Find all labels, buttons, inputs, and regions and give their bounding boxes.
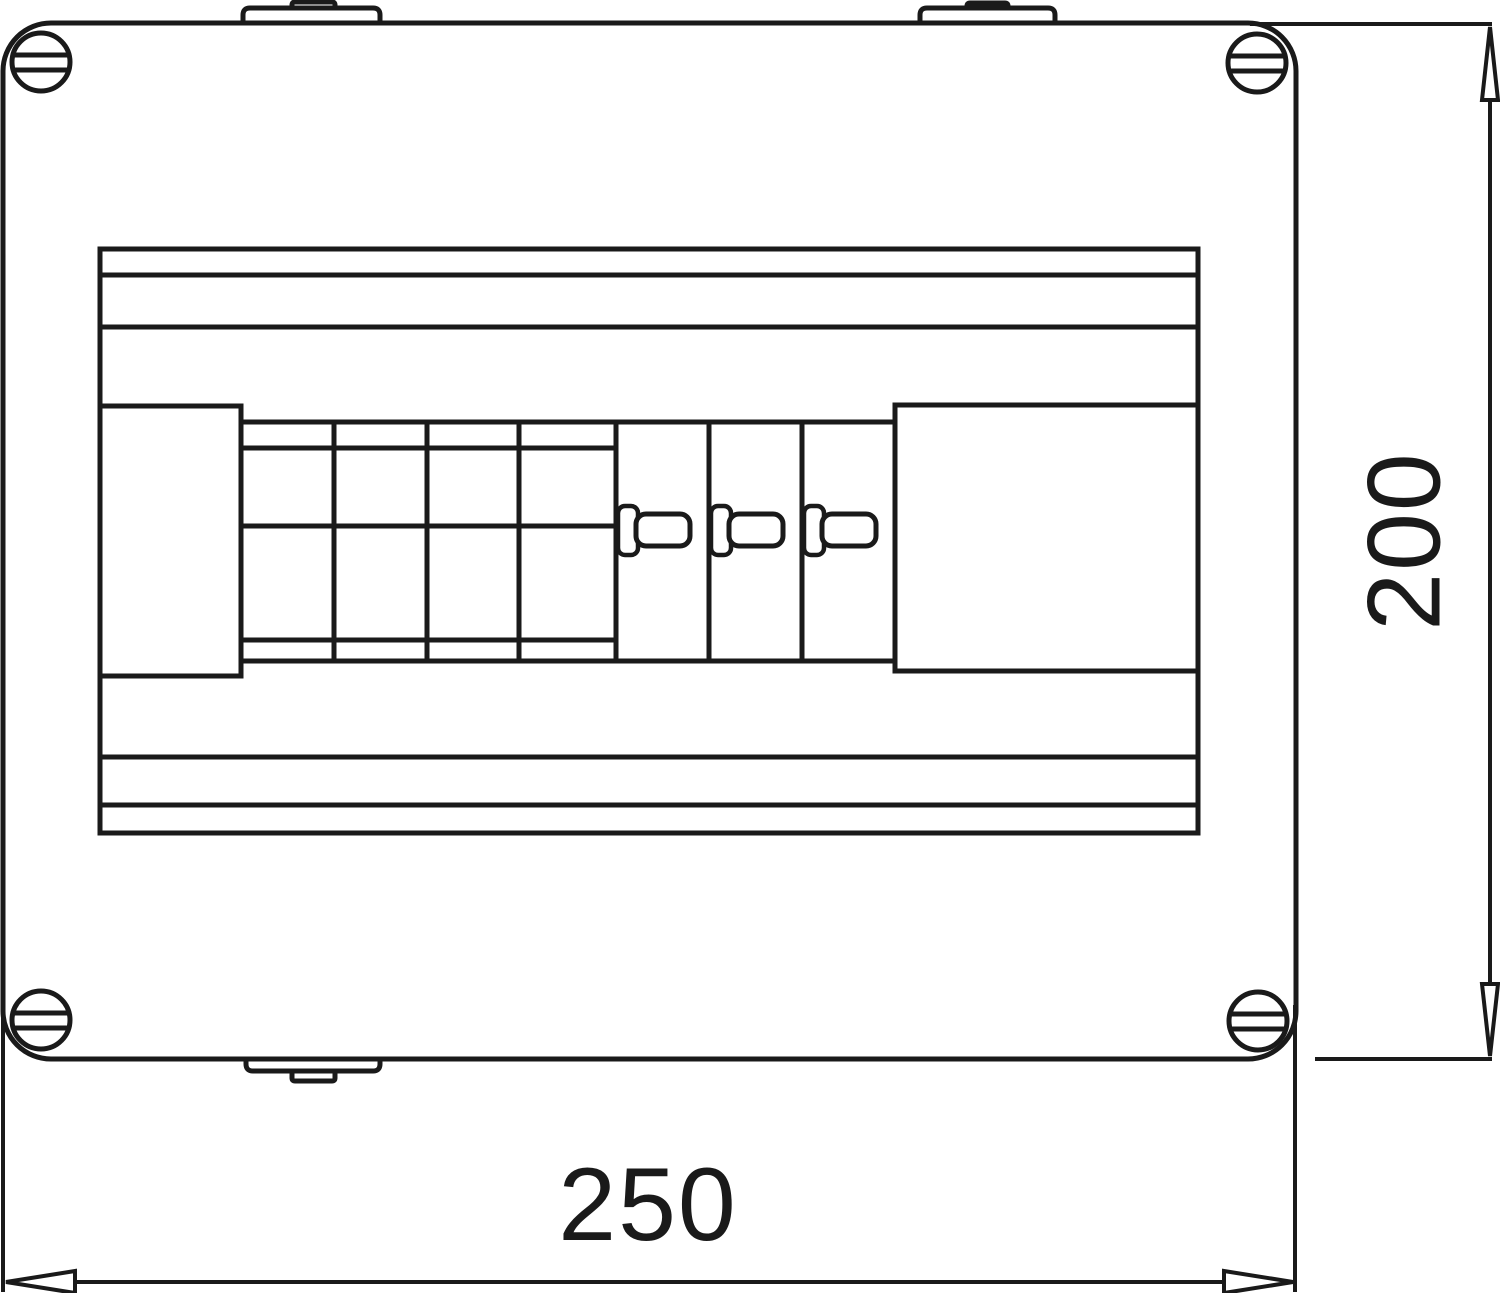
tab-inner-step (292, 1071, 335, 1081)
mounting-tab-bottom (246, 1059, 380, 1081)
toggle-lever-icon (822, 514, 876, 546)
toggle-lever-icon (729, 514, 783, 546)
screw-head (1228, 34, 1286, 92)
screw-head (12, 991, 70, 1049)
height-dimension-label: 200 (1346, 451, 1462, 631)
screw-head (12, 33, 70, 91)
arrowhead-up-icon (1482, 27, 1498, 100)
technical-drawing-canvas: 200 250 (0, 0, 1500, 1293)
screw-head (1229, 992, 1287, 1050)
arrowhead-left-icon (6, 1271, 75, 1293)
tab-inner-step (967, 3, 1008, 8)
enclosure-drawing: 200 250 (0, 0, 1500, 1293)
screw-top-left (12, 33, 70, 91)
screw-bottom-right (1229, 992, 1287, 1050)
screw-top-right (1228, 34, 1286, 92)
screw-bottom-left (12, 991, 70, 1049)
mounting-tab-top-right (920, 3, 1055, 23)
mounting-tab-top-left (243, 2, 380, 23)
toggle-lever-icon (636, 514, 690, 546)
tab-inner-step (292, 2, 335, 8)
width-dimension-label: 250 (558, 1147, 738, 1263)
arrowhead-right-icon (1224, 1271, 1293, 1293)
arrowhead-down-icon (1482, 984, 1498, 1056)
